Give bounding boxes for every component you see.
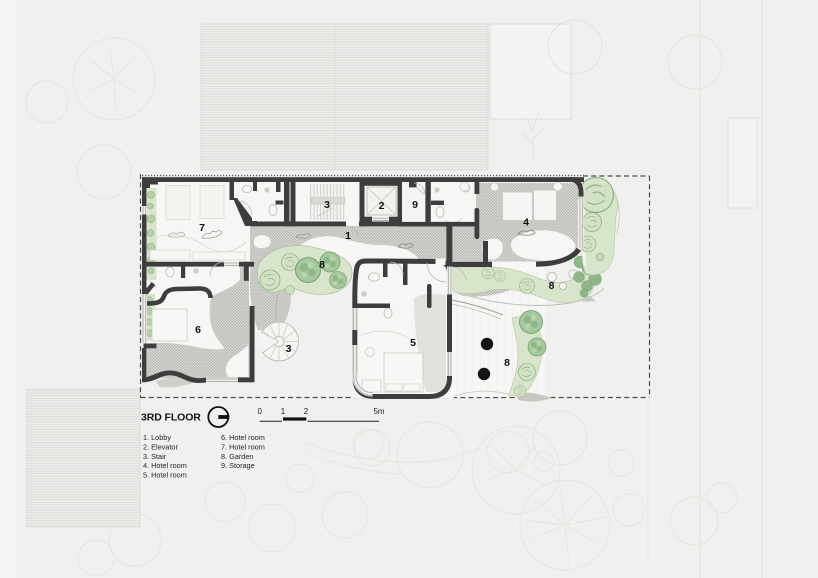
svg-text:2. Elevator: 2. Elevator <box>143 443 178 452</box>
svg-text:3. Stair: 3. Stair <box>143 452 167 461</box>
svg-text:1: 1 <box>281 407 286 416</box>
svg-text:2: 2 <box>304 407 309 416</box>
svg-text:5: 5 <box>410 337 416 349</box>
svg-text:4: 4 <box>523 217 529 229</box>
svg-text:9. Storage: 9. Storage <box>221 461 255 470</box>
svg-text:1. Lobby: 1. Lobby <box>143 433 171 442</box>
svg-text:2: 2 <box>379 200 385 212</box>
svg-text:5. Hotel room: 5. Hotel room <box>143 470 187 479</box>
svg-text:4. Hotel room: 4. Hotel room <box>143 461 187 470</box>
svg-text:6: 6 <box>195 324 201 336</box>
svg-text:0: 0 <box>257 407 262 416</box>
svg-text:8: 8 <box>319 259 325 271</box>
svg-text:8: 8 <box>549 280 555 292</box>
svg-text:3: 3 <box>286 343 292 355</box>
svg-text:7: 7 <box>199 222 205 234</box>
svg-text:1: 1 <box>345 230 351 242</box>
svg-text:5m: 5m <box>373 407 384 416</box>
svg-text:7. Hotel room: 7. Hotel room <box>221 443 265 452</box>
svg-text:9: 9 <box>412 199 418 211</box>
svg-text:3: 3 <box>324 199 330 211</box>
svg-text:8: 8 <box>504 357 510 369</box>
svg-text:6. Hotel room: 6. Hotel room <box>221 433 265 442</box>
svg-text:3RD FLOOR: 3RD FLOOR <box>141 412 201 424</box>
svg-text:8. Garden: 8. Garden <box>221 452 253 461</box>
